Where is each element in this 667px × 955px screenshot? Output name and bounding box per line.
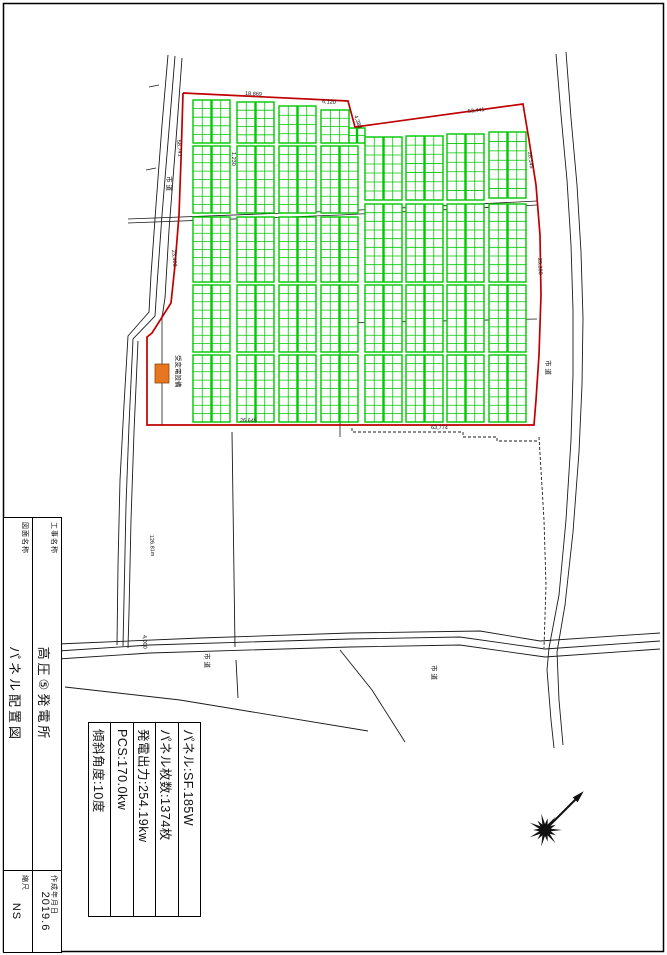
road-line <box>123 56 175 646</box>
panel-array-block <box>489 132 526 198</box>
road-line <box>557 52 583 745</box>
project-name-value: 高圧⑤発電所 <box>36 647 59 742</box>
panel-array-block <box>489 204 526 282</box>
survey-tick <box>146 168 156 170</box>
road-label: 市道 <box>203 653 212 670</box>
road-line <box>547 54 573 748</box>
panel-array-block <box>279 146 316 213</box>
road-label: 市道 <box>165 176 174 193</box>
panel-array-block <box>193 146 230 213</box>
dimension-label: 18,869 <box>245 91 262 98</box>
panel-array-block <box>447 134 484 200</box>
panel-array-block <box>447 355 484 422</box>
panel-array-block <box>406 204 443 282</box>
fence-line <box>539 437 546 648</box>
spec-row: 発電出力:254.19kw <box>133 723 155 916</box>
dimension-label: 58,741 <box>175 140 182 157</box>
title-block-drawing-row: 図面名称 パネル配置図 縮尺 NS <box>4 518 32 952</box>
date-cell: 作成年月日 2019.6 <box>33 870 61 952</box>
panel-array-block <box>321 285 358 352</box>
panel-array-block <box>349 128 365 143</box>
panel-array-block <box>365 355 402 422</box>
panel-array-block <box>321 217 358 282</box>
spec-table: パネル:SF.185Wパネル枚数:1374枚発電出力:254.19kwPCS:1… <box>88 722 201 917</box>
title-block-project-row: 工事名称 高圧⑤発電所 作成年月日 2019.6 <box>32 518 61 952</box>
spec-row: パネル:SF.185W <box>178 723 200 916</box>
panel-array-block <box>279 355 316 422</box>
spec-row: 傾斜角度:10度 <box>89 723 110 916</box>
dimension-label: 6,120 <box>322 99 336 106</box>
panel-array-block <box>193 217 230 282</box>
drawing-sheet: 受変電設備18,8696,1204,38353,44128,14529,3905… <box>0 0 667 955</box>
date-label: 作成年月日 <box>49 875 59 915</box>
dimension-label: 28,145 <box>526 152 534 169</box>
dimension-label: 23,402 <box>170 250 177 267</box>
dimension-label: 29,390 <box>536 258 543 275</box>
road-label: 市道 <box>544 360 553 377</box>
road-line <box>128 341 138 648</box>
panel-array-block <box>447 285 484 352</box>
panel-array-block <box>237 102 274 143</box>
panel-array-block <box>237 355 274 422</box>
panel-array-block <box>489 285 526 352</box>
panel-array-block <box>237 217 274 282</box>
project-name-cell: 工事名称 高圧⑤発電所 <box>33 518 61 870</box>
panel-array-block <box>321 146 358 213</box>
panel-array-block <box>193 285 230 352</box>
panel-array-block <box>279 217 316 282</box>
road-line <box>232 432 235 647</box>
panel-array-block <box>406 136 443 200</box>
panel-array-block <box>406 285 443 352</box>
panel-array-block <box>279 106 316 143</box>
panel-array-block <box>321 110 349 143</box>
road-label: 市道 <box>430 665 439 682</box>
road-line <box>236 660 238 698</box>
drawing-name-value: パネル配置図 <box>7 646 30 742</box>
panel-array-block <box>237 146 274 213</box>
panel-array-block <box>365 204 402 282</box>
panel-array-block <box>193 355 230 422</box>
road-line <box>58 631 660 644</box>
drawing-name-label: 図面名称 <box>20 522 30 554</box>
dimension-label: 4,000 <box>141 635 147 649</box>
title-block: 工事名称 高圧⑤発電所 作成年月日 2019.6 図面名称 パネル配置図 縮尺 … <box>3 517 62 953</box>
scale-label: 縮尺 <box>20 875 30 891</box>
scale-value: NS <box>10 903 26 920</box>
spec-row: パネル枚数:1374枚 <box>155 723 177 916</box>
survey-tick <box>149 85 159 87</box>
panel-array-block <box>321 355 358 422</box>
dimension-label: 63,774 <box>431 425 448 431</box>
panel-array-block <box>489 355 526 422</box>
north-arrow <box>530 791 584 846</box>
drawing-name-cell: 図面名称 パネル配置図 <box>4 518 32 870</box>
panel-array-block <box>365 285 402 352</box>
dimension-label: 1,230 <box>230 152 236 166</box>
panel-array-block <box>279 285 316 352</box>
scale-cell: 縮尺 NS <box>4 870 32 952</box>
panel-array-block <box>406 355 443 422</box>
equipment-rect <box>155 364 169 383</box>
panel-array-block <box>365 137 402 200</box>
panel-array-block <box>447 204 484 282</box>
dimension-label: 53,441 <box>468 107 485 115</box>
compass-needle <box>545 797 578 830</box>
equipment-label: 受変電設備 <box>174 355 183 388</box>
panel-array-block <box>193 100 230 143</box>
panel-array-block <box>237 285 274 352</box>
dimension-label: 126.81m <box>148 535 155 557</box>
spec-row: PCS:170.0kw <box>110 723 132 916</box>
project-name-label: 工事名称 <box>49 522 59 554</box>
dimension-label: 26,645 <box>240 418 257 424</box>
